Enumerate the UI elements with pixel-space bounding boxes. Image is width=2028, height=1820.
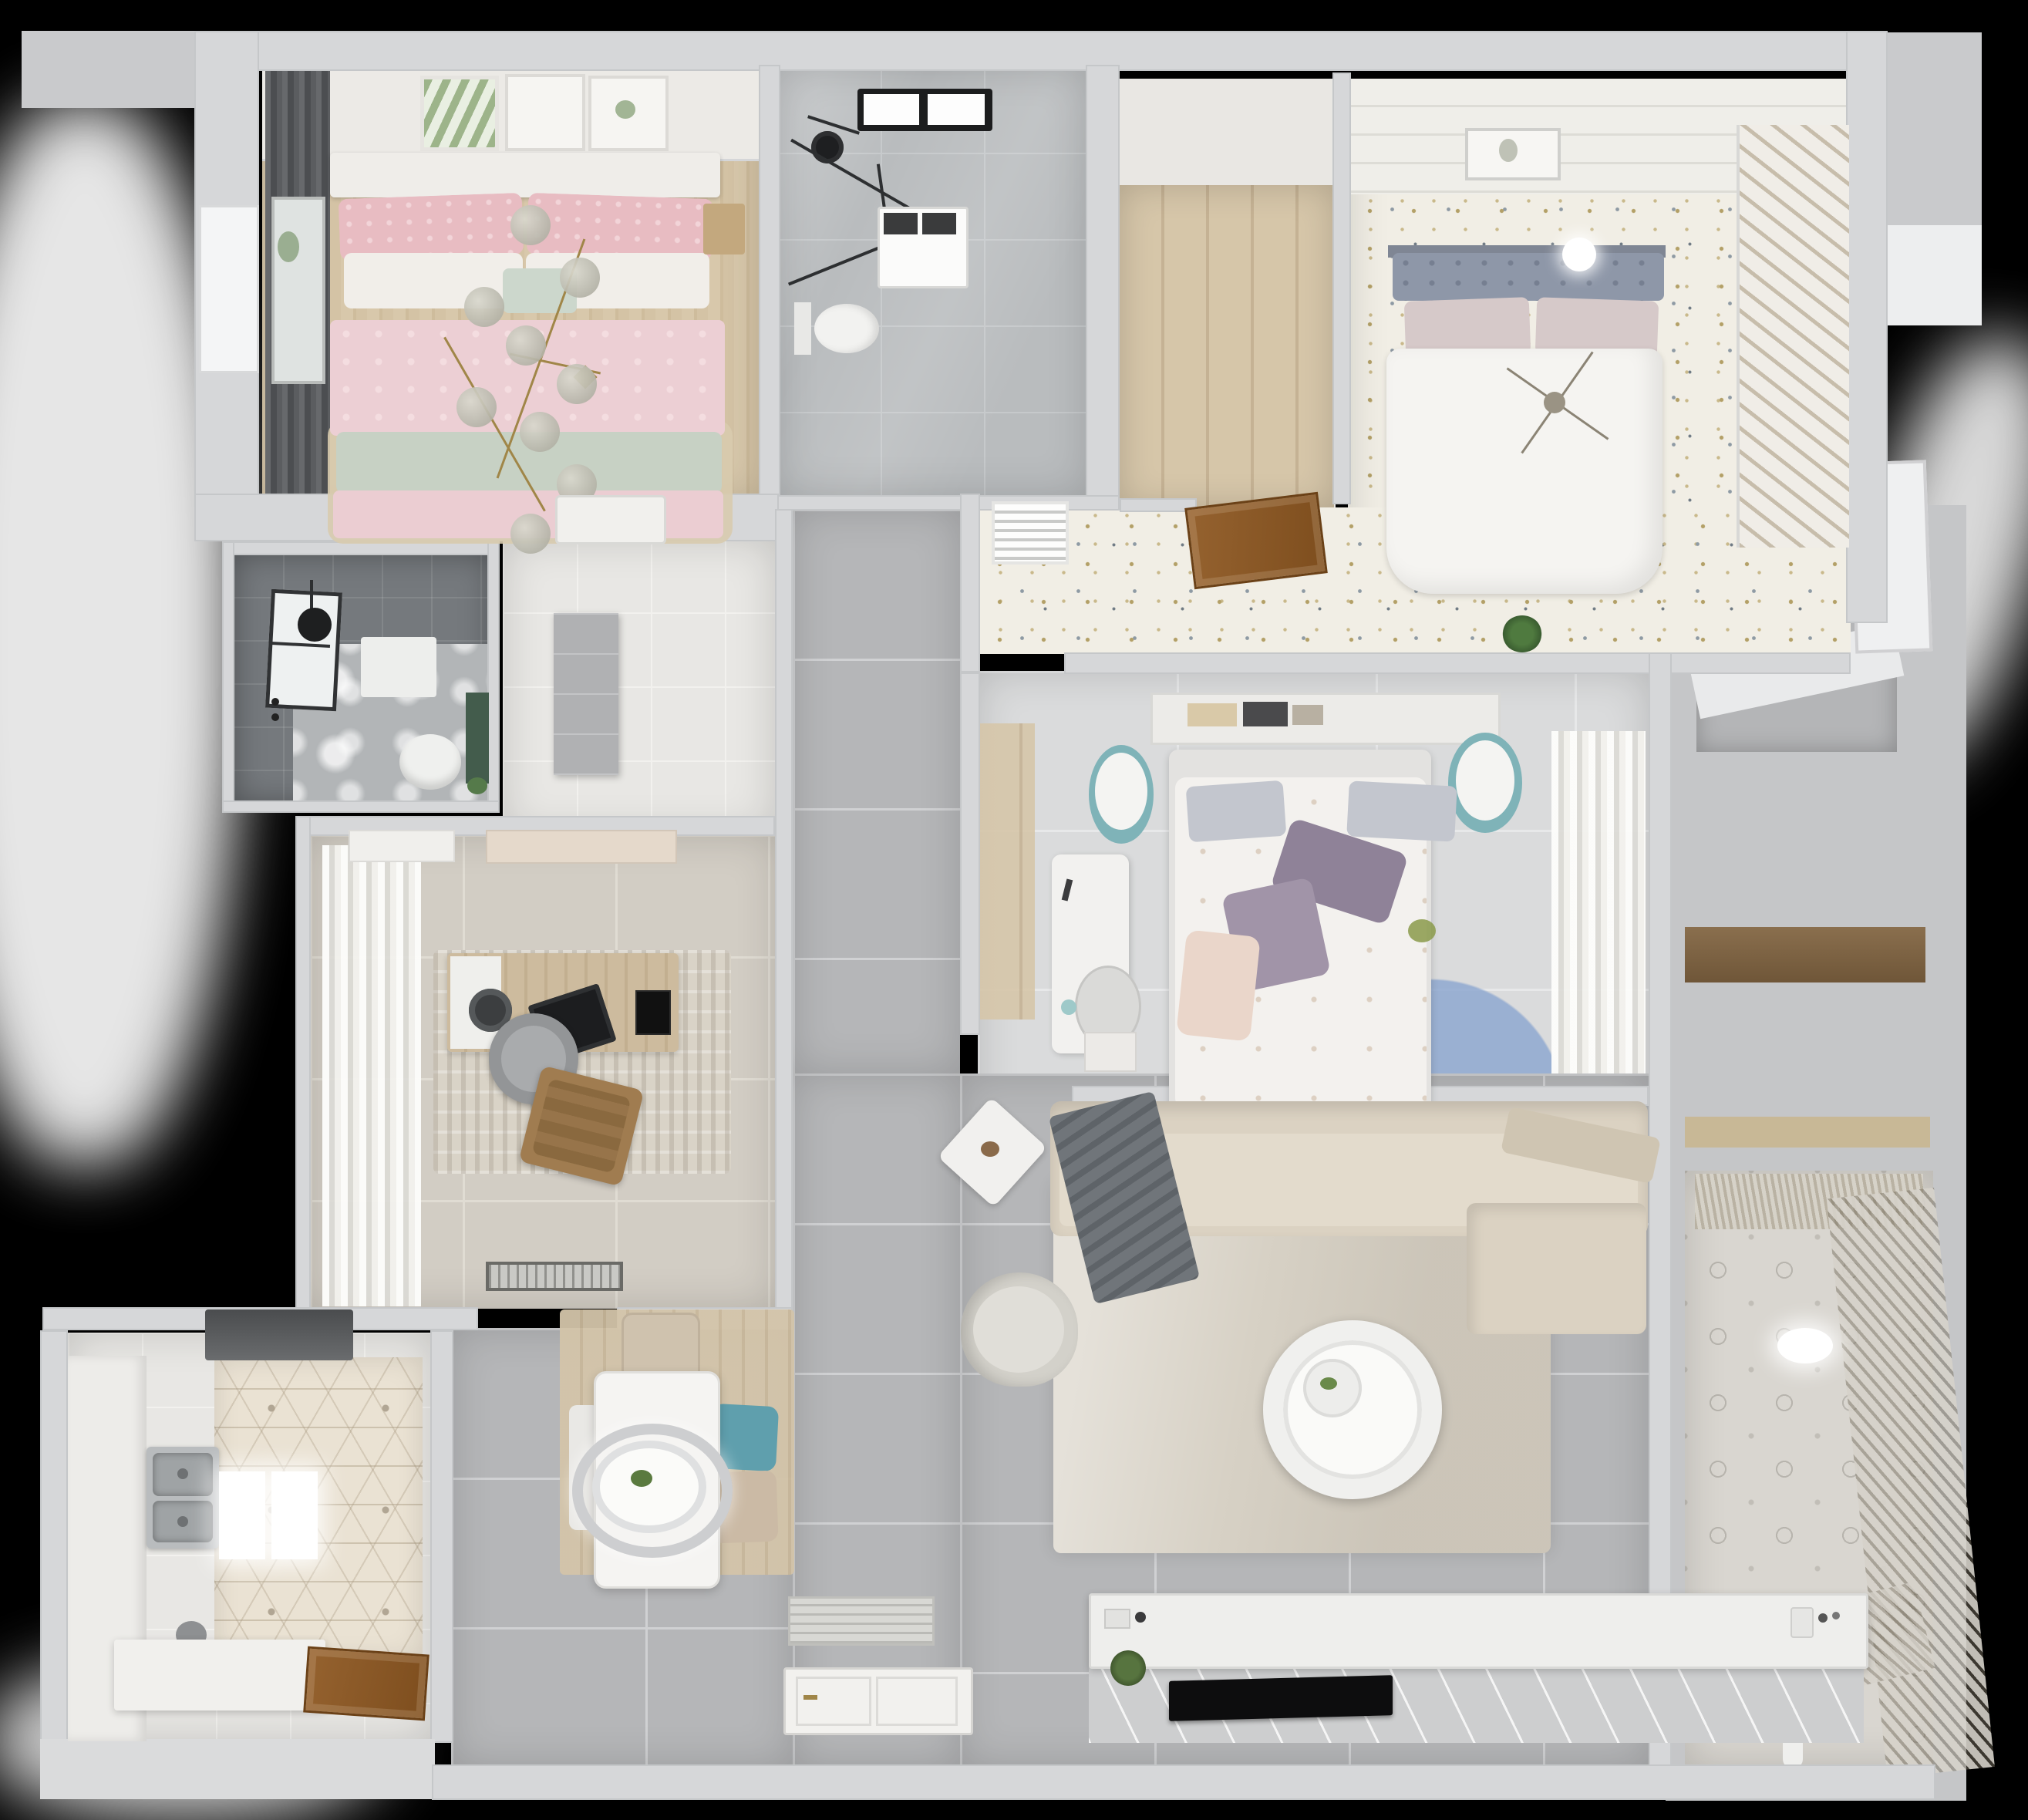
desk-teal-cup bbox=[1061, 999, 1076, 1015]
closet-open-door bbox=[1184, 492, 1328, 589]
bath-dark-control-2 bbox=[271, 713, 279, 721]
toilet-tank bbox=[794, 302, 811, 355]
pouf-left-top bbox=[1095, 753, 1147, 830]
window-ledge bbox=[1883, 225, 1982, 325]
frame-green-art bbox=[420, 76, 499, 151]
pendant-lamp-mid bbox=[592, 1441, 706, 1533]
console-books-2 bbox=[1243, 702, 1288, 726]
frame-leaf-dot bbox=[615, 100, 635, 119]
entry-hall-floor bbox=[503, 538, 775, 834]
wall-master-top bbox=[1064, 652, 1851, 674]
wall-top bbox=[254, 31, 1851, 71]
bath-dark-control-1 bbox=[271, 698, 279, 706]
console-decor-box bbox=[1104, 1609, 1130, 1629]
window-plant bbox=[278, 231, 299, 262]
desk-art-board bbox=[635, 990, 671, 1035]
tv-console bbox=[1089, 1593, 1868, 1669]
entry-door-handle bbox=[803, 1695, 817, 1700]
console-plant bbox=[1110, 1650, 1146, 1686]
hall-cabinet bbox=[554, 613, 618, 775]
kitchen-light-2 bbox=[271, 1471, 318, 1559]
console-decor-dot bbox=[1135, 1612, 1146, 1623]
study-doormat bbox=[486, 1262, 623, 1291]
console-dot-2 bbox=[1832, 1612, 1840, 1619]
nightstand bbox=[703, 204, 745, 254]
pendant-plant bbox=[631, 1470, 652, 1487]
bath-dark-shower-stem bbox=[310, 580, 313, 611]
console-dot-1 bbox=[1818, 1613, 1828, 1623]
wall-right-top bbox=[1846, 31, 1888, 623]
wall-kitchen-dining bbox=[430, 1330, 453, 1743]
frame-white-1 bbox=[505, 74, 585, 151]
chandelier-bulb-5 bbox=[557, 364, 597, 404]
chandelier-bulb-7 bbox=[520, 412, 560, 452]
wall-corridor-left bbox=[775, 509, 793, 1328]
white-door-left bbox=[199, 205, 259, 373]
range-hood bbox=[205, 1309, 353, 1360]
wall-bottom bbox=[432, 1764, 1935, 1800]
bed-guest bbox=[1386, 349, 1662, 594]
tv-screen bbox=[1169, 1675, 1393, 1721]
entry-band-plant bbox=[1502, 615, 1542, 652]
chandelier-bulb-4 bbox=[506, 325, 546, 366]
closet-shelf-dark bbox=[1685, 927, 1925, 982]
sink-drain-1 bbox=[177, 1468, 188, 1479]
kitchen-light-1 bbox=[219, 1471, 265, 1559]
frame-guest-sketch bbox=[1499, 139, 1518, 162]
console-books-3 bbox=[1292, 705, 1323, 725]
pouf-right-top bbox=[1456, 740, 1514, 821]
wall-bath-dark-frame-bottom bbox=[222, 800, 500, 813]
wall-study-left bbox=[295, 816, 311, 1309]
guest-wardrobe bbox=[1737, 125, 1849, 548]
pillow-pink-2 bbox=[527, 193, 714, 261]
skylight-pane-2 bbox=[928, 94, 985, 125]
kitchen-island bbox=[114, 1640, 325, 1710]
wall-kitchen-bottom bbox=[40, 1739, 435, 1799]
guest-chandelier-hub bbox=[1544, 392, 1565, 413]
master-pillow-silver-2 bbox=[1346, 780, 1457, 841]
hallway-floor bbox=[793, 509, 960, 1073]
master-drawer bbox=[1084, 1032, 1137, 1072]
exterior-block-top-left bbox=[22, 31, 199, 108]
wall-hall-right-upper bbox=[960, 494, 980, 672]
guest-headboard bbox=[1393, 253, 1664, 301]
chandelier-bulb-1 bbox=[510, 205, 551, 245]
console-books-1 bbox=[1187, 703, 1237, 726]
tray-plant bbox=[1320, 1377, 1337, 1390]
skylight-pane-1 bbox=[864, 94, 919, 125]
master-pillow-silver-1 bbox=[1186, 780, 1287, 843]
duvet-sprig bbox=[1408, 919, 1436, 942]
balcony-light bbox=[1777, 1328, 1833, 1363]
sofa-chaise bbox=[1467, 1203, 1646, 1334]
kitchen-open-door bbox=[303, 1646, 430, 1721]
closet-shelf-light bbox=[1685, 1117, 1930, 1148]
master-wood-strip bbox=[978, 723, 1035, 1020]
sink-drain-2 bbox=[177, 1516, 188, 1527]
green-shelf bbox=[466, 693, 489, 784]
washer-drum-1 bbox=[884, 213, 918, 234]
chandelier-bulb-3 bbox=[464, 287, 504, 327]
wall-closet-guest bbox=[1332, 72, 1351, 504]
toilet-main bbox=[814, 304, 879, 353]
bath-dark-window bbox=[265, 589, 342, 712]
wall-master-left bbox=[960, 672, 980, 1035]
wall-bed1-bath1 bbox=[759, 65, 780, 497]
entry-doormat bbox=[788, 1596, 935, 1646]
hallway-floor-lower bbox=[793, 1073, 960, 1766]
vent-grille-icon bbox=[992, 501, 1069, 565]
shower-tray bbox=[361, 637, 436, 697]
bed-pink bbox=[330, 153, 720, 197]
side-table-flowers bbox=[981, 1141, 999, 1157]
chandelier-bulb-6 bbox=[456, 387, 497, 427]
toilet-dark bbox=[399, 734, 461, 790]
bath-dark-shower-head-icon bbox=[298, 608, 332, 642]
master-pillow-blush bbox=[1176, 929, 1261, 1041]
washer-drum-2 bbox=[922, 213, 956, 234]
floor-plan-canvas bbox=[0, 0, 2028, 1820]
green-shelf-plant bbox=[467, 777, 487, 794]
chandelier-bulb-2 bbox=[560, 258, 600, 298]
study-curtains bbox=[322, 845, 421, 1306]
study-cabinet-white bbox=[349, 830, 455, 862]
chandelier-bulb-9 bbox=[510, 514, 551, 554]
bedroom-pink-window bbox=[271, 197, 325, 384]
wall-bath-dark-frame-left bbox=[222, 541, 234, 813]
entry-door-panel-1 bbox=[796, 1677, 871, 1726]
wall-bath1-closet bbox=[1086, 65, 1120, 501]
closet-room-floor bbox=[1120, 185, 1334, 507]
guest-ceiling-lamp bbox=[1562, 238, 1596, 271]
armchair-seat bbox=[973, 1286, 1064, 1373]
coffee-table-icon bbox=[1263, 1320, 1442, 1499]
entry-door-panel-2 bbox=[876, 1677, 958, 1726]
console-vase bbox=[1791, 1607, 1814, 1638]
wall-bath-dark-frame-right bbox=[487, 541, 500, 813]
study-cabinet-beige bbox=[486, 830, 677, 864]
wall-kitchen-left bbox=[40, 1330, 68, 1745]
pillow-pink-1 bbox=[339, 193, 524, 261]
bedroom-bench bbox=[555, 495, 666, 544]
